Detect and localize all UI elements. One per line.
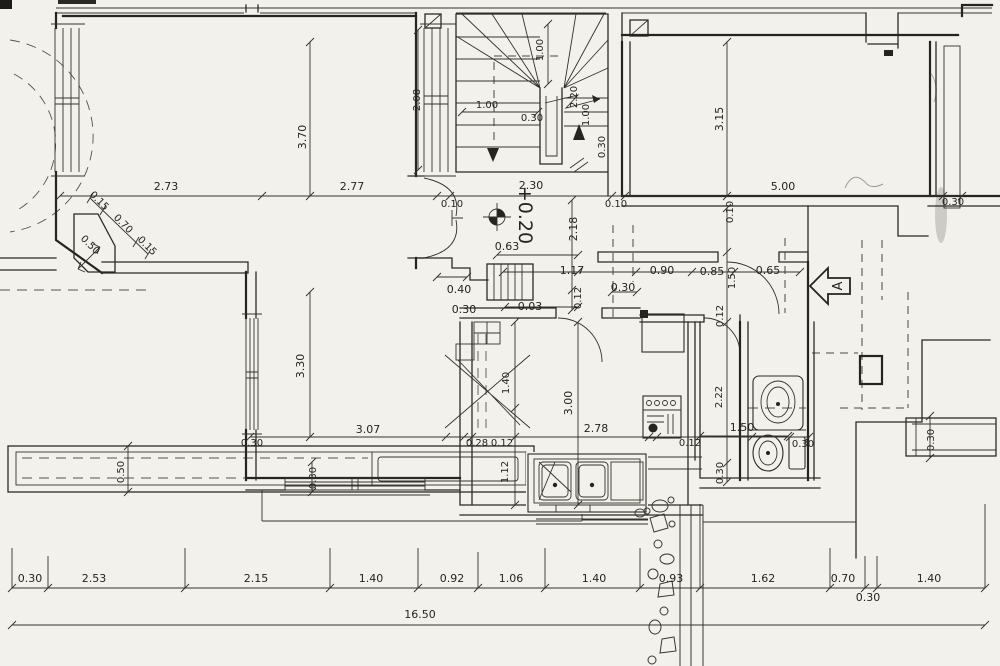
dim-label: 0.30 xyxy=(308,467,319,489)
dim-label: 2.22 xyxy=(714,386,725,408)
fridge xyxy=(642,314,684,352)
bath-sink xyxy=(753,376,803,430)
staircase xyxy=(456,14,608,172)
dim-label: 0.30 xyxy=(18,572,43,585)
dim-label: 0.85 xyxy=(700,265,725,278)
dim-label: 0.30 xyxy=(856,591,881,604)
dim-label: 3.15 xyxy=(713,107,726,132)
dimension-lines xyxy=(8,20,989,629)
dim-label: 2.18 xyxy=(567,217,580,242)
section-arrow: A xyxy=(810,268,850,304)
dim-label: 1.00 xyxy=(581,104,592,126)
dim-label: 3.30 xyxy=(294,354,307,379)
level-benchmark-icon xyxy=(483,203,511,231)
dim-label: 1.50 xyxy=(730,421,755,434)
dim-label: 0.40 xyxy=(447,283,472,296)
dim-label: 0.30 xyxy=(926,429,937,451)
dim-label: 3.00 xyxy=(562,391,575,416)
dim-label: 1.62 xyxy=(751,572,776,585)
dim-label: 0.10 xyxy=(441,199,463,210)
dim-label: 0.12 xyxy=(679,438,701,449)
dim-label: 0.50 xyxy=(78,233,102,257)
dim-label: 1.40 xyxy=(582,572,607,585)
dim-label: 0.63 xyxy=(495,240,520,253)
dim-label: 3.70 xyxy=(296,125,309,150)
dim-label: 0.12 xyxy=(715,305,726,327)
kitchen-sink xyxy=(526,452,648,514)
dim-label: 0.15 xyxy=(135,234,159,258)
level-marker-label: +0.20 xyxy=(514,186,536,244)
dim-label: 0.10 xyxy=(725,201,736,223)
dim-label: 1.50 xyxy=(727,267,738,289)
floor-plan-sheet: A 2.73 2.77 0.10 2.30 0.10 5.00 0.30 0.1… xyxy=(0,0,1000,666)
dim-label: 0.30 xyxy=(597,136,608,158)
dim-label: 0.30 xyxy=(792,439,814,450)
dashed-lines xyxy=(0,40,908,478)
floor-plan-drawing: A 2.73 2.77 0.10 2.30 0.10 5.00 0.30 0.1… xyxy=(0,0,1000,666)
dim-label: 0.30 xyxy=(521,113,543,124)
dim-label: 1.40 xyxy=(501,372,512,394)
dim-label: 0.93 xyxy=(659,572,684,585)
section-arrow-label: A xyxy=(831,281,846,290)
dim-label: 0.30 xyxy=(942,197,964,208)
dim-label: 0.30 xyxy=(452,303,477,316)
dim-label: 1.17 xyxy=(560,264,585,277)
dim-label: 2.78 xyxy=(584,422,609,435)
dim-label: 1.00 xyxy=(535,39,546,61)
dim-label: 1.00 xyxy=(476,100,498,111)
dim-label: 1.06 xyxy=(499,572,524,585)
dim-label: 0.70 xyxy=(831,572,856,585)
dimension-labels: 2.73 2.77 0.10 2.30 0.10 5.00 0.30 0.15 … xyxy=(18,39,964,621)
dim-label: 0.12 xyxy=(491,438,513,449)
dim-label: 5.00 xyxy=(771,180,796,193)
dim-label: 1.40 xyxy=(359,572,384,585)
dim-label: 2.15 xyxy=(244,572,269,585)
stair-down-arrow xyxy=(487,148,499,162)
bathroom-fixtures xyxy=(753,376,805,471)
kitchen-fixtures xyxy=(526,310,684,514)
dim-label: 1.12 xyxy=(500,461,511,483)
dim-label: 2.08 xyxy=(412,89,423,111)
dim-label: 2.77 xyxy=(340,180,365,193)
dim-label: 2.73 xyxy=(154,180,179,193)
dim-label: 1.40 xyxy=(917,572,942,585)
cooktop xyxy=(643,396,681,438)
dim-label: 0.10 xyxy=(605,199,627,210)
dim-label: 0.30 xyxy=(715,462,726,484)
dim-label: 0.30 xyxy=(241,438,263,449)
dim-label: 0.90 xyxy=(650,264,675,277)
dim-label: 0.15 xyxy=(87,189,111,213)
dim-label: 0.92 xyxy=(440,572,465,585)
dim-label: 0.50 xyxy=(116,461,127,483)
dim-label: 2.20 xyxy=(569,86,580,108)
dim-label: 0.28 xyxy=(466,438,488,449)
dim-label: 0.12 xyxy=(573,287,584,309)
dim-label: 3.07 xyxy=(356,423,381,436)
windows xyxy=(51,24,648,524)
total-length-label: 16.50 xyxy=(404,608,436,621)
dim-label: 0.30 xyxy=(611,281,636,294)
dim-label: 0.03 xyxy=(518,300,543,313)
dim-label: 2.53 xyxy=(82,572,107,585)
dim-label: 0.65 xyxy=(756,264,781,277)
dim-label: 0.70 xyxy=(111,212,135,236)
